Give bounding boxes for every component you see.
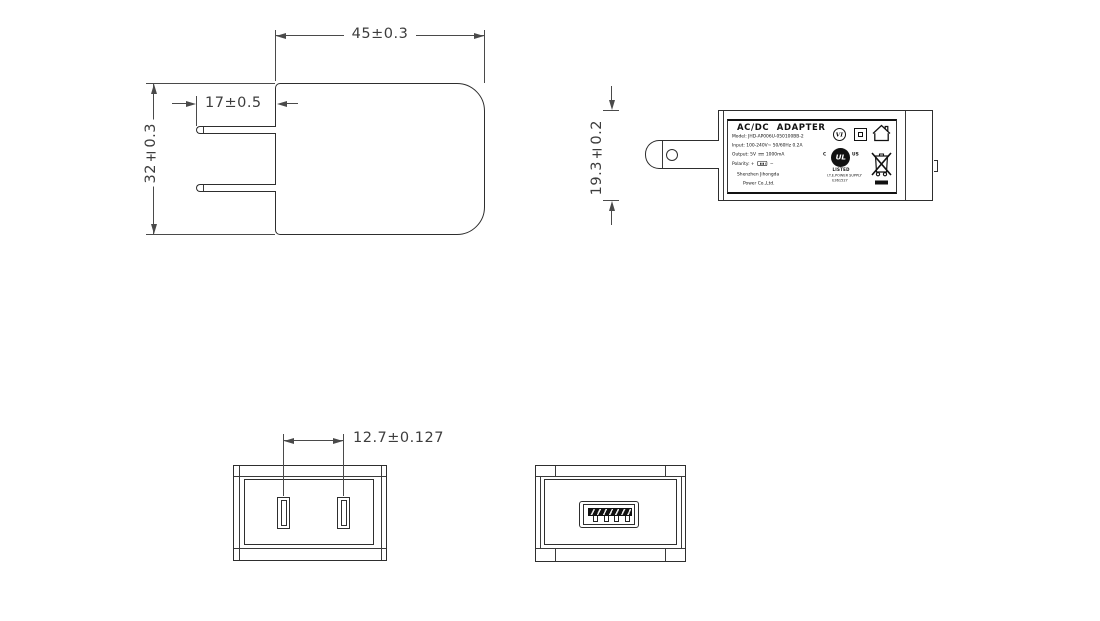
usb-contact-tab-3 (614, 516, 619, 522)
usbface-cap-tick-bottom-right (665, 549, 666, 561)
usbface-cap-tick-bottom-left (555, 549, 556, 561)
usbface-bottom-cap-line (536, 548, 685, 549)
usb-contact-tab-1 (593, 516, 598, 522)
usbface-right-wall-line (681, 477, 682, 548)
usb-contact-tab-4 (625, 516, 630, 522)
technical-drawing-canvas: 45±0.3 32±0.3 17±0.5 19.3±0.2 (0, 0, 1100, 621)
usbface-cap-tick-top-left (555, 466, 556, 476)
usbface-top-cap-line (536, 476, 685, 477)
usb-face-view (0, 0, 1100, 621)
usbface-left-wall-line (540, 477, 541, 548)
usbface-cap-tick-top-right (665, 466, 666, 476)
usb-contact-tab-2 (604, 516, 609, 522)
